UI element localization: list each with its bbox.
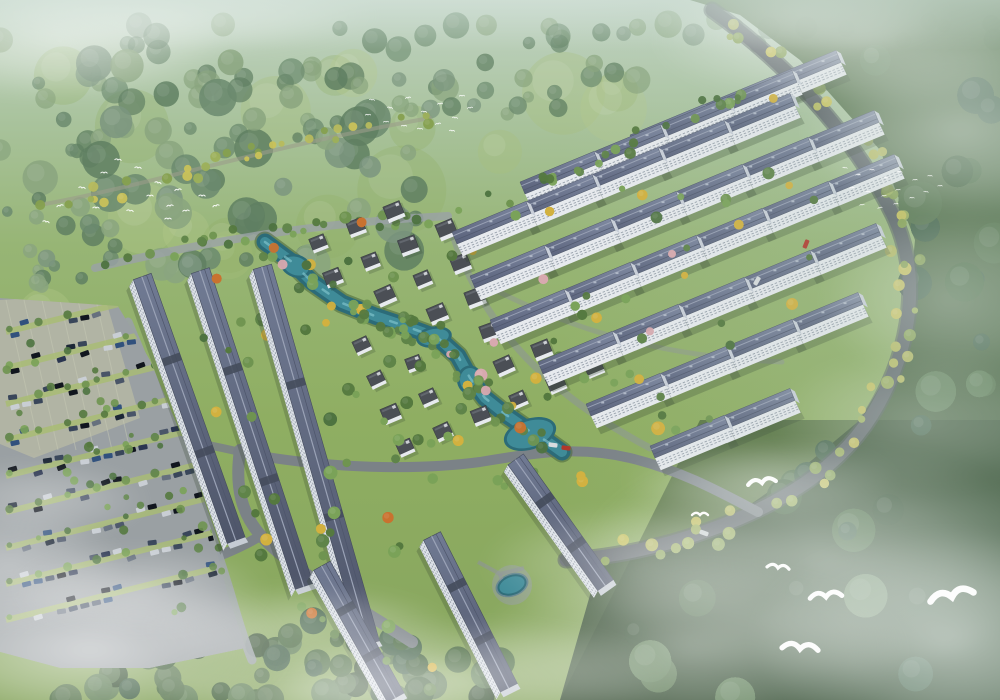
mist-cloud: [10, 545, 270, 635]
rendered-scene: [0, 0, 1000, 700]
aerial-masterplan-image: Aerial 3D architectural rendering of a r…: [0, 0, 1000, 700]
